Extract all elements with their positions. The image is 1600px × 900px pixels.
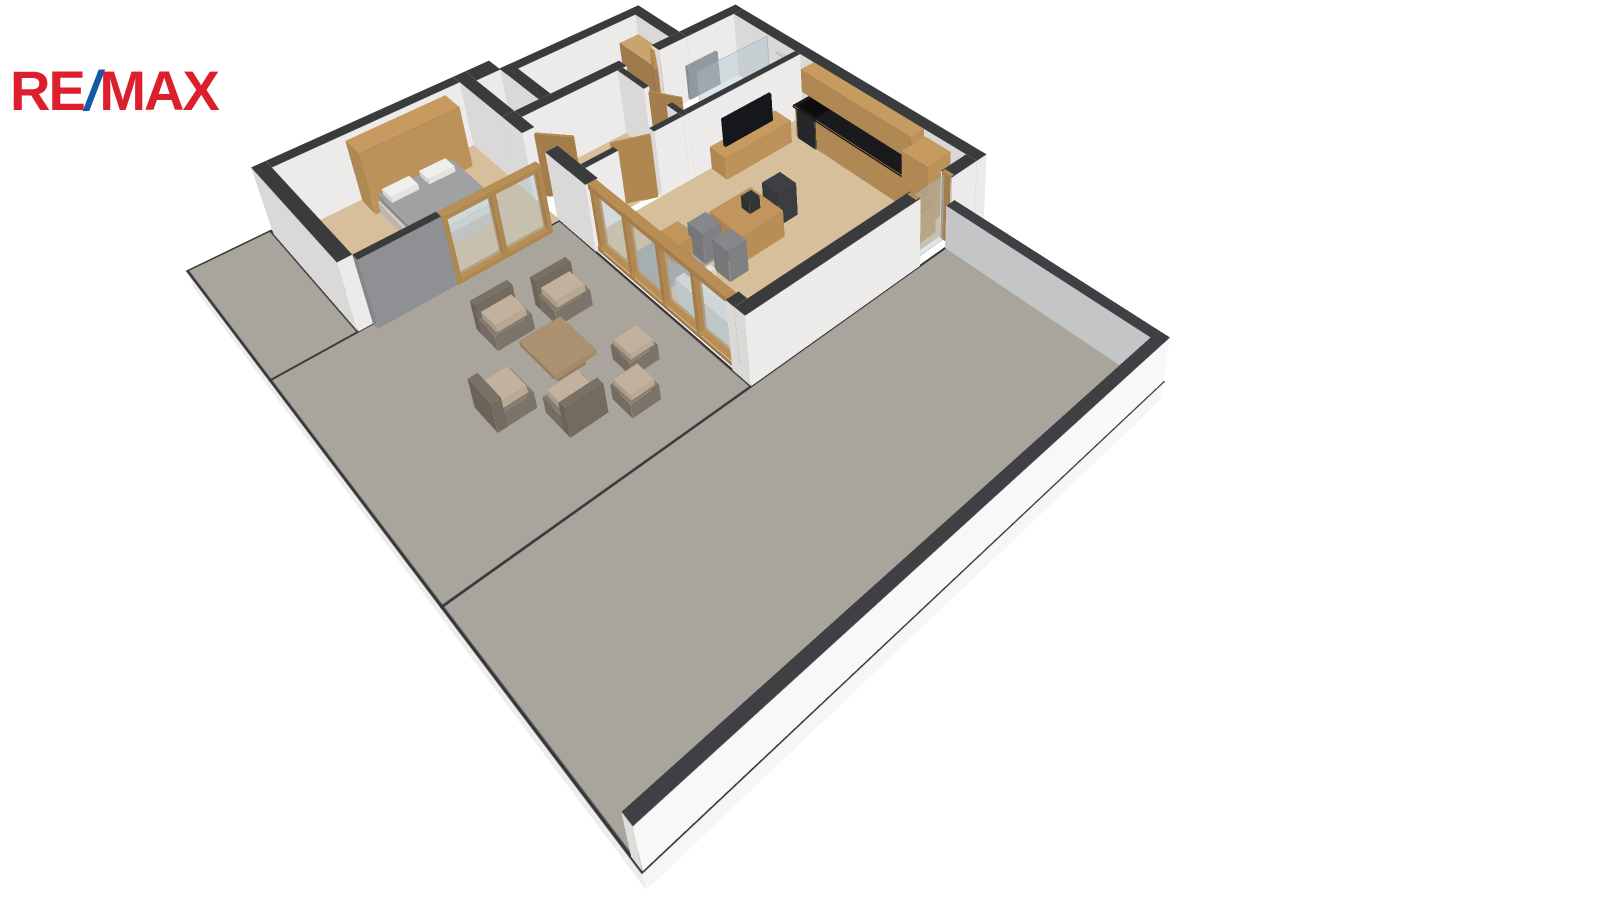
floorplan-page: RE/MAX (0, 0, 1600, 900)
floorplan-3d-viewport (0, 0, 1600, 900)
